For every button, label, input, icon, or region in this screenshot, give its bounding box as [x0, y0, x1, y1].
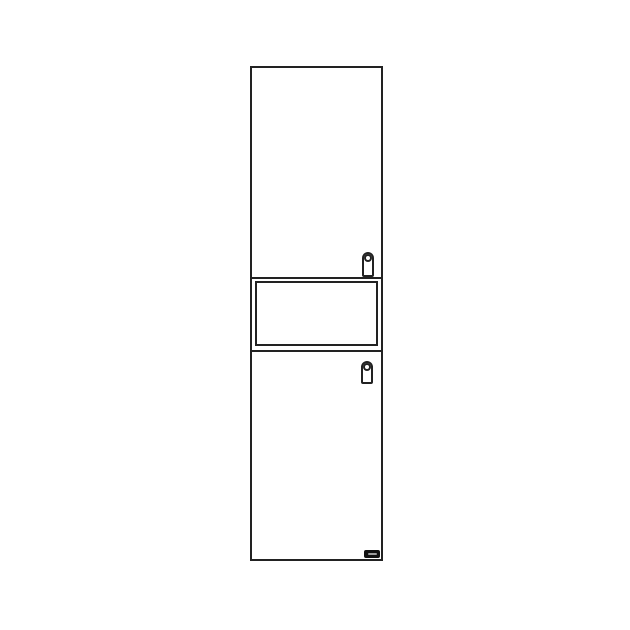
- handle-knob-icon: [363, 363, 371, 371]
- brand-logo-badge: [364, 550, 380, 558]
- brand-logo-mark: [368, 553, 377, 555]
- handle-knob-icon: [364, 254, 372, 262]
- tall-cabinet-outline: [250, 66, 383, 561]
- door-handle-icon: [361, 361, 373, 384]
- open-shelf-compartment: [255, 281, 378, 346]
- upper-door-panel: [252, 68, 381, 277]
- product-drawing-canvas: [0, 0, 630, 630]
- upper-door-bottom-edge: [252, 277, 381, 279]
- door-handle-icon: [362, 252, 374, 277]
